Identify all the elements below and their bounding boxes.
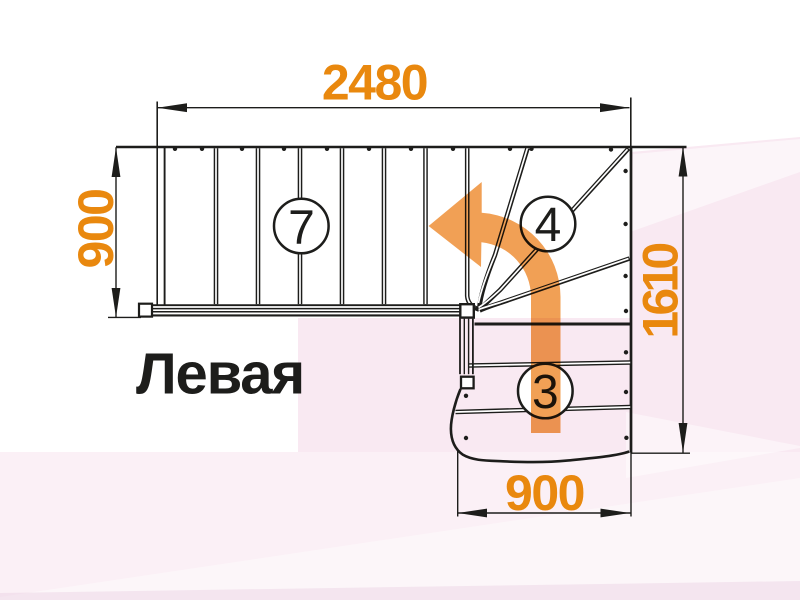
svg-text:2480: 2480 [322,55,427,111]
svg-text:1610: 1610 [633,244,689,339]
svg-text:7: 7 [288,201,315,254]
svg-text:900: 900 [505,465,584,521]
svg-text:900: 900 [68,190,124,269]
svg-text:Левая: Левая [136,342,304,407]
